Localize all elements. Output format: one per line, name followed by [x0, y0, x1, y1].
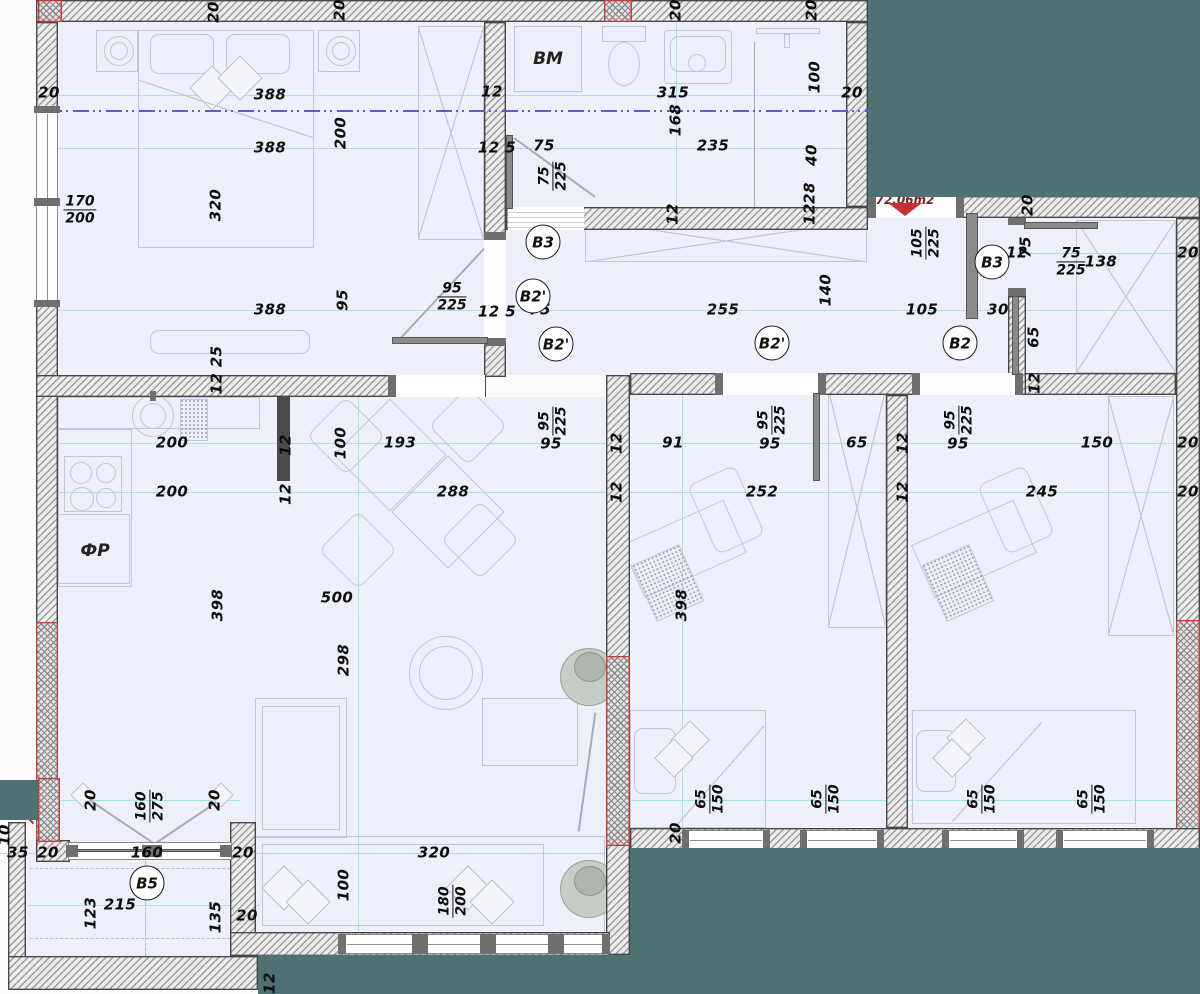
window-jamb: [338, 934, 346, 954]
dim-label: 12: [803, 203, 818, 225]
wardrobe-cross: [1076, 220, 1176, 373]
dim-fraction: 105225: [909, 226, 942, 259]
wall-bed2-bed3: [886, 395, 908, 828]
room-marker-b2p: B2': [539, 327, 574, 362]
window: [345, 934, 609, 954]
dim-label: 12: [263, 972, 278, 994]
dim-label: 95: [947, 437, 969, 452]
lamp: [332, 42, 350, 60]
window: [688, 830, 764, 850]
dim-label: 12: [610, 432, 625, 454]
dim-label: 320: [418, 846, 451, 861]
toilet-tank: [602, 26, 646, 42]
dim-label: 200: [156, 436, 189, 451]
room-marker-b3: B3: [526, 225, 561, 260]
room-marker-b2p: B2': [516, 279, 551, 314]
dim-fraction: 160275: [133, 789, 166, 822]
window-jamb: [34, 300, 60, 307]
wall-top: [36, 0, 868, 22]
entrance-arrow: [888, 203, 922, 216]
dim-fraction: 65150: [809, 784, 842, 813]
pillow: [150, 34, 214, 74]
dim-label: 20: [669, 822, 684, 844]
dim-label: 95: [336, 289, 351, 311]
chaise-seat: [262, 706, 340, 830]
dim-label: 20: [208, 789, 223, 811]
window: [806, 830, 878, 850]
outside-area: [630, 848, 1200, 994]
dim-label: 193: [384, 436, 417, 451]
dim-fraction: 180200: [436, 884, 469, 917]
window: [1062, 830, 1148, 850]
room-label: BM: [533, 49, 563, 69]
door-opening: [920, 373, 1015, 395]
dim-label: 20: [84, 789, 99, 811]
door-leaf: [1012, 296, 1019, 375]
ottoman: [482, 698, 578, 766]
dim-label: 168: [669, 104, 684, 137]
door-jamb: [715, 373, 723, 395]
plant-leaves: [574, 866, 606, 896]
dim-label: 315: [657, 86, 690, 101]
burner: [70, 487, 94, 511]
room-marker-b2: B2: [943, 326, 978, 361]
dim-label: 30: [987, 303, 1009, 318]
dim-label: 12: [481, 85, 503, 100]
door-opening: [395, 375, 485, 397]
door-jamb: [912, 373, 920, 395]
dim-label: 12 5: [478, 141, 516, 156]
room-marker-b2p: B2': [755, 326, 790, 361]
dim-label: 12 5: [478, 305, 516, 320]
wall-hall-bedrooms: [630, 373, 1176, 395]
window-post: [548, 934, 564, 954]
dim-label: 215: [104, 898, 137, 913]
dim-label: 12: [896, 481, 911, 503]
dim-label: 91: [662, 436, 684, 451]
balcony-grid-line: [30, 938, 230, 939]
window-jamb: [1147, 830, 1154, 850]
dim-label: 138: [1085, 255, 1118, 270]
dim-label: 388: [254, 88, 287, 103]
dim-label: 65: [846, 436, 868, 451]
window-post: [412, 934, 428, 954]
dim-label: 20: [841, 86, 863, 101]
wall-pillar: [1176, 620, 1200, 855]
window-jamb: [602, 934, 610, 954]
wall-pillar: [604, 0, 632, 22]
faucet: [150, 391, 156, 401]
dim-label: 500: [321, 591, 354, 606]
window-jamb: [942, 830, 949, 850]
dim-label: 200: [156, 485, 189, 500]
window: [36, 112, 58, 302]
dim-fraction: 95225: [755, 405, 788, 434]
drain: [688, 54, 706, 72]
dim-label: 298: [337, 644, 352, 677]
dim-label: 135: [209, 901, 224, 934]
burner: [96, 488, 116, 508]
dim-fraction: 95225: [942, 405, 975, 434]
dim-fraction: 65150: [693, 784, 726, 813]
window-jamb: [877, 830, 884, 850]
dim-label: 28: [803, 182, 818, 204]
toilet-bowl: [608, 42, 640, 86]
sliding-door-handle: [66, 845, 78, 857]
lamp: [110, 42, 128, 60]
dim-label: 65: [1027, 326, 1042, 348]
bench: [150, 330, 310, 354]
room-marker-b3: B3: [975, 245, 1010, 280]
burner: [70, 462, 92, 484]
room-label: ФР: [80, 541, 109, 561]
coffee-table: [419, 646, 473, 700]
wardrobe-cross: [1108, 396, 1174, 636]
dim-label: 105: [906, 303, 939, 318]
dim-fraction: 95225: [536, 406, 569, 435]
floor-plan: 72.06m2 2020202020388123151002038820012 …: [0, 0, 1200, 994]
dim-fraction: 170200: [63, 193, 96, 226]
balcony-grid-line: [30, 868, 230, 869]
dim-label: 12: [1028, 372, 1043, 394]
dim-label: 95: [759, 437, 781, 452]
dim-label: 95: [540, 437, 562, 452]
dim-label: 12: [666, 203, 681, 225]
door-leaf: [1024, 222, 1098, 229]
dim-label: 252: [746, 485, 779, 500]
dim-label: 20: [37, 846, 59, 861]
dim-fraction: 95225: [437, 280, 466, 313]
dim-fraction: 75225: [1056, 245, 1085, 278]
dim-label: 398: [211, 589, 226, 622]
dim-label: 388: [254, 303, 287, 318]
dim-label: 12: [279, 483, 294, 505]
window-jamb: [800, 830, 807, 850]
partition-line: [754, 42, 755, 208]
door-jamb: [388, 375, 396, 397]
outside-area: [0, 780, 38, 820]
dim-label: 12: [896, 432, 911, 454]
dim-label: 100: [334, 427, 349, 460]
dim-label: 20: [805, 0, 820, 21]
dim-fraction: 65150: [1075, 784, 1108, 813]
window-jamb: [1017, 830, 1024, 850]
door-jamb: [1015, 373, 1023, 395]
door-jamb: [1008, 288, 1026, 296]
dim-label: 320: [209, 189, 224, 222]
dim-label: 160: [131, 846, 164, 861]
dim-label: 20: [669, 0, 684, 21]
wardrobe-cross: [418, 26, 484, 240]
dim-label: 20: [1177, 485, 1199, 500]
door-leaf: [392, 337, 488, 344]
dim-label: 123: [84, 897, 99, 930]
wall-pillar: [606, 656, 630, 846]
window-jamb: [763, 830, 770, 850]
dim-label: 100: [337, 869, 352, 902]
dim-label: 255: [707, 303, 740, 318]
towel-rail-stem: [784, 34, 790, 48]
dim-label: 12: [610, 481, 625, 503]
dim-fraction: 65150: [965, 784, 998, 813]
dim-label: 20: [232, 846, 254, 861]
wall-balcony-bottom: [8, 956, 258, 990]
dim-fraction: 75225: [536, 161, 569, 190]
dim-label: 20: [1021, 194, 1036, 216]
window-jamb: [34, 198, 60, 206]
door-jamb: [956, 196, 964, 218]
wall-bath-right: [846, 22, 868, 207]
dim-label: 200: [334, 117, 349, 150]
dim-label: 10: [0, 824, 13, 846]
dim-label: 20: [207, 1, 222, 23]
door-jamb: [484, 232, 506, 240]
door-jamb: [818, 373, 826, 395]
wall-pillar: [38, 778, 60, 842]
dim-label: 288: [437, 485, 470, 500]
dim-label: 398: [675, 589, 690, 622]
dim-label: 235: [697, 139, 730, 154]
outside-area: [868, 0, 1200, 197]
door-opening: [723, 373, 818, 395]
dim-label: 140: [819, 274, 834, 307]
dim-label: 150: [1081, 436, 1114, 451]
dim-label: 75: [1019, 236, 1034, 258]
dim-label: 20: [38, 86, 60, 101]
dim-label: 20: [1177, 436, 1199, 451]
sliding-door-handle: [220, 845, 232, 857]
kitchen-sink: [140, 403, 166, 429]
dim-label: 75: [533, 139, 555, 154]
dim-label: 12: [279, 434, 294, 456]
dim-label: 20: [333, 0, 348, 21]
door-leaf: [813, 393, 820, 481]
window-jamb: [34, 106, 60, 113]
wardrobe-cross: [828, 388, 886, 628]
dim-label: 20: [1177, 246, 1199, 261]
dim-line: [28, 905, 260, 906]
door-opening: [484, 240, 506, 338]
burner: [96, 463, 116, 483]
section-axis-line: [40, 110, 868, 112]
room-marker-b5: B5: [130, 866, 165, 901]
plant-leaves: [574, 652, 606, 682]
dim-label: 12 25: [210, 346, 225, 395]
wall-pillar: [38, 0, 62, 22]
dim-label: 100: [808, 61, 823, 94]
dim-label: 388: [254, 141, 287, 156]
blanket-fold-line: [138, 80, 314, 138]
outside-area: [258, 955, 630, 994]
dim-label: 40: [805, 144, 820, 166]
dim-label: 245: [1026, 485, 1059, 500]
window-jamb: [1056, 830, 1063, 850]
dim-label: 20: [236, 909, 258, 924]
window-post: [480, 934, 496, 954]
dim-label: 35: [7, 846, 29, 861]
window: [948, 830, 1018, 850]
